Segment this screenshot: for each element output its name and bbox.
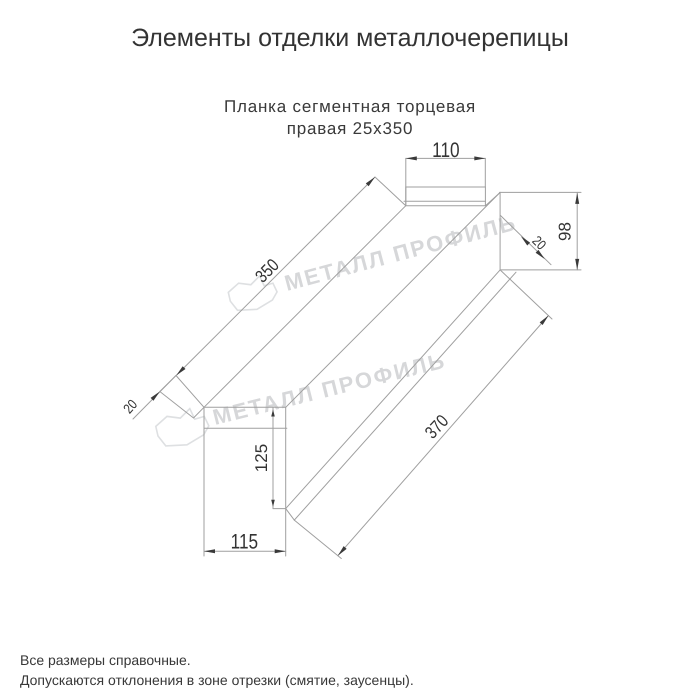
svg-text:370: 370	[421, 411, 452, 443]
svg-text:115: 115	[231, 531, 258, 554]
svg-text:20: 20	[529, 232, 549, 252]
svg-text:МЕТАЛЛ ПРОФИЛЬ: МЕТАЛЛ ПРОФИЛЬ	[282, 210, 520, 296]
svg-text:98: 98	[555, 222, 574, 241]
svg-text:350: 350	[251, 255, 283, 287]
svg-text:110: 110	[432, 139, 459, 162]
svg-text:125: 125	[252, 444, 271, 472]
svg-text:МЕТАЛЛ ПРОФИЛЬ: МЕТАЛЛ ПРОФИЛЬ	[210, 348, 448, 430]
svg-text:20: 20	[120, 396, 141, 416]
